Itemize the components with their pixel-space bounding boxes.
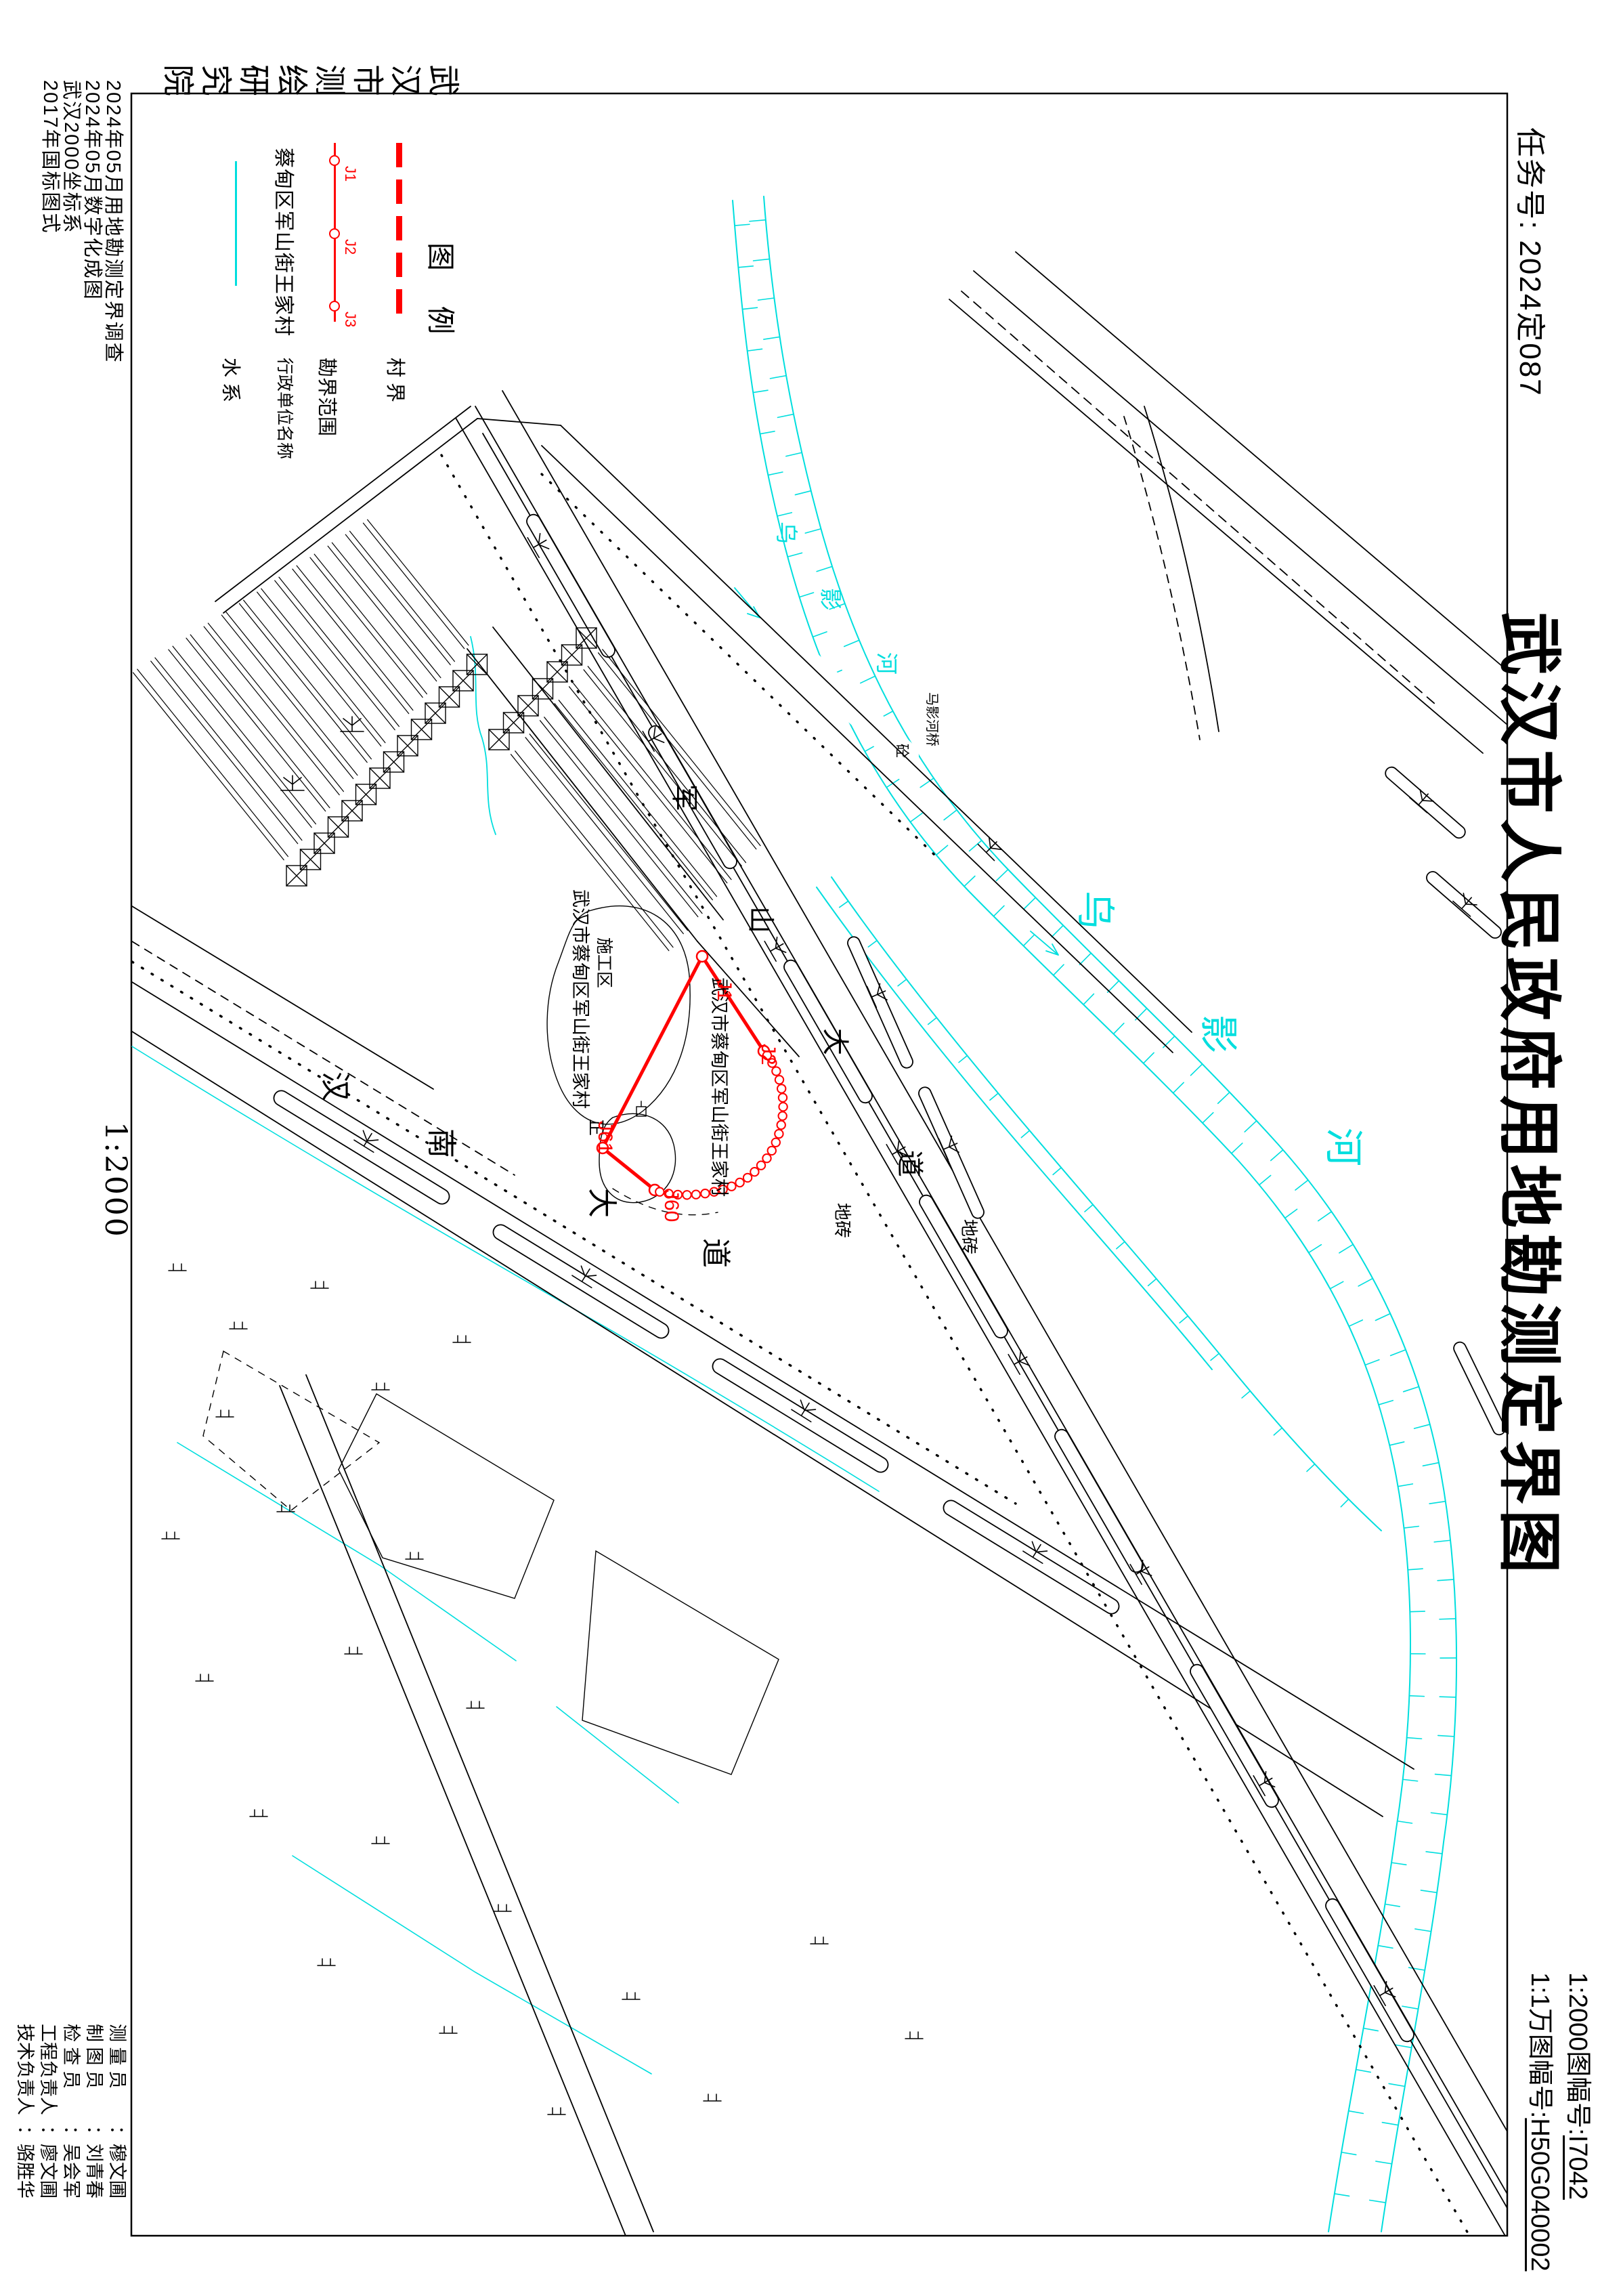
survey-point-icon [329, 301, 340, 312]
survey-extent-symbol: J1 J2 J3 [321, 143, 348, 322]
checker-name: 吴会军 [61, 2144, 81, 2198]
survey-point-icon [329, 228, 340, 239]
river-name-upper-2: 影 [818, 588, 843, 610]
legend-j1: J1 [341, 166, 359, 182]
paving-label-1: 地砖 [832, 1203, 852, 1238]
legend-title: 图 例 [422, 242, 463, 348]
note-line: 2024年05月用地勘测定界调查 [102, 80, 123, 364]
village-label-inside: 武汉市蔡甸区军山街王家村 [709, 977, 729, 1197]
surveyor-name: 穆文圃 [107, 2144, 127, 2198]
road-a-char-3: 大 [585, 1188, 618, 1218]
map-scale: 1:2000 [98, 1122, 133, 1239]
admin-name-label: 行政单位名称 [274, 358, 298, 459]
admin-name-example: 蔡甸区军山街王家村 [271, 148, 301, 337]
agency-name: 武汉市测绘研究院 [157, 54, 460, 101]
vegetation-symbols [162, 530, 1480, 2114]
task-number: 任务号: 2024定087 [1511, 127, 1555, 397]
road-a-char-2: 南 [425, 1128, 458, 1158]
river-name-upper-3: 河 [874, 652, 899, 675]
note-line: 2024年05月数字化成图 [81, 80, 102, 364]
tech-lead-name: 骆胜华 [15, 2144, 35, 2198]
greenhouse-strips [133, 519, 760, 950]
sheet-number-2000-value: I7042 [1563, 2135, 1592, 2200]
survey-boundary [597, 951, 787, 1199]
survey-extent-label: 勘界范围 [314, 358, 343, 436]
survey-point-icon [329, 155, 340, 166]
map-notes: 2024年05月用地勘测定界调查 2024年05月数字化成图 武汉2000坐标系… [39, 80, 123, 364]
personnel-row: 技术负责人：骆胜华 [14, 2024, 37, 2198]
legend-j3: J3 [341, 312, 359, 327]
road-a-char-4: 道 [699, 1238, 732, 1268]
water-symbol [235, 161, 237, 286]
note-line: 武汉2000坐标系 [60, 80, 81, 364]
sheet-number-10k: 1:1万图幅号:H50G040002 [1521, 1972, 1559, 2271]
road-network [132, 252, 1570, 2283]
sheet-numbers: 1:2000图幅号:I7042 1:1万图幅号:H50G040002 [1521, 1972, 1597, 2271]
personnel-row: 检 查 员：吴会军 [60, 2024, 83, 2198]
construction-area-label: 施工区 [594, 937, 613, 988]
j60-label: J60 [660, 1189, 683, 1222]
village-boundary-symbol [396, 143, 402, 322]
bridge-label: 马影河桥 [924, 692, 940, 746]
sheet-number-2000: 1:2000图幅号:I7042 [1559, 1972, 1597, 2271]
legend-j2: J2 [341, 239, 359, 255]
personnel-row: 工程负责人：廖文圃 [37, 2024, 60, 2198]
sheet-title: 武汉市人民政府用地勘测定界图 [1488, 612, 1580, 1579]
river-name-upper-1: 乌 [774, 522, 799, 544]
personnel-row: 制 图 员：刘青春 [83, 2024, 106, 2198]
personnel-row: 测 量 员：穆文圃 [106, 2024, 129, 2198]
j61-label: J61 [594, 1121, 616, 1153]
road-b-char-3: 大 [820, 1028, 850, 1055]
village-boundary-label: 村 界 [383, 358, 411, 402]
project-lead-name: 廖文圃 [38, 2144, 58, 2198]
map-labels: 武汉市蔡甸区军山街王家村 武汉市蔡甸区军山街王家村 施工区 正 马影河桥 砼 地… [318, 522, 1365, 1268]
village-label-outside: 武汉市蔡甸区军山街王家村 [570, 889, 590, 1109]
road-b-char-4: 道 [894, 1150, 924, 1177]
river-name-lower-3: 河 [1322, 1128, 1365, 1166]
j2-label: J2 [757, 1044, 779, 1065]
sheet-number-10k-value: H50G040002 [1526, 2118, 1554, 2271]
legend: 图 例 村 界 J1 J2 J3 勘界范围 蔡甸区军山街王家村 行政单位名称 水… [191, 134, 475, 452]
river-name-lower-1: 乌 [1073, 891, 1117, 929]
road-a-char-1: 汉 [318, 1071, 351, 1101]
map-sheet: 武汉市蔡甸区军山街王家村 武汉市蔡甸区军山街王家村 施工区 正 马影河桥 砼 地… [0, 0, 1600, 2296]
road-b-char-2: 山 [745, 906, 775, 933]
paving-label-2: 地砖 [959, 1219, 979, 1254]
water-label: 水 系 [218, 358, 246, 402]
river-name-lower-2: 影 [1196, 1015, 1240, 1053]
road-b-char-1: 军 [669, 784, 699, 811]
concrete-mark: 砼 [894, 744, 909, 758]
personnel-block: 测 量 员：穆文圃 制 图 员：刘青春 检 查 员：吴会军 工程负责人：廖文圃 … [14, 2024, 129, 2198]
field-outlines [203, 906, 779, 1774]
j1-label: J1 [713, 979, 735, 1001]
drafter-name: 刘青春 [84, 2144, 104, 2198]
river-network [132, 196, 1456, 2232]
note-line: 2017年国标图式 [39, 80, 60, 364]
